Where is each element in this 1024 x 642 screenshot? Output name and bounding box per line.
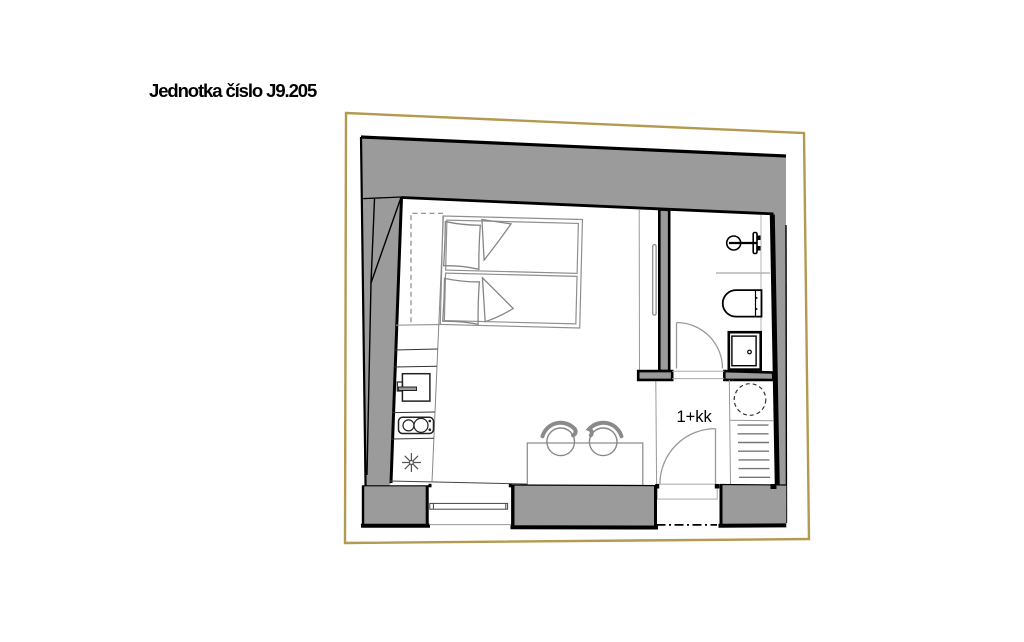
svg-text:1+kk: 1+kk: [677, 408, 713, 426]
